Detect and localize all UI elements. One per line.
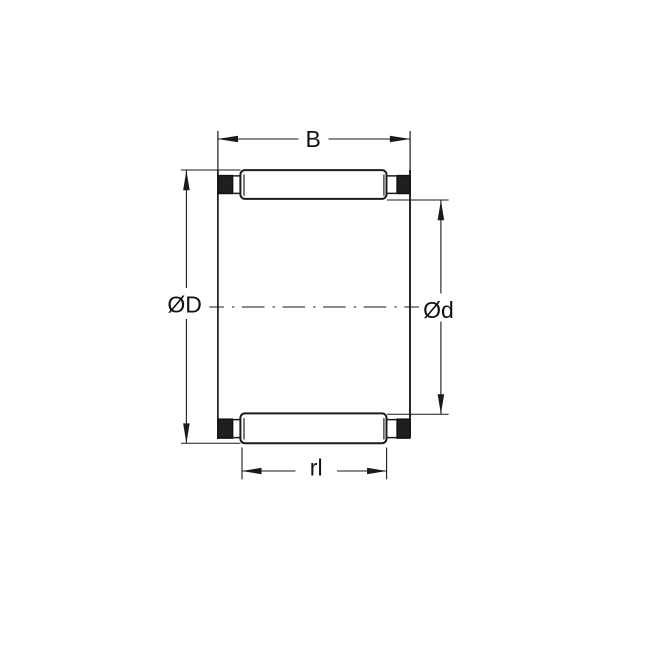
svg-text:rl: rl (310, 455, 323, 481)
svg-text:Ød: Ød (423, 297, 454, 323)
svg-text:B: B (306, 126, 321, 152)
svg-text:ØD: ØD (167, 291, 202, 317)
